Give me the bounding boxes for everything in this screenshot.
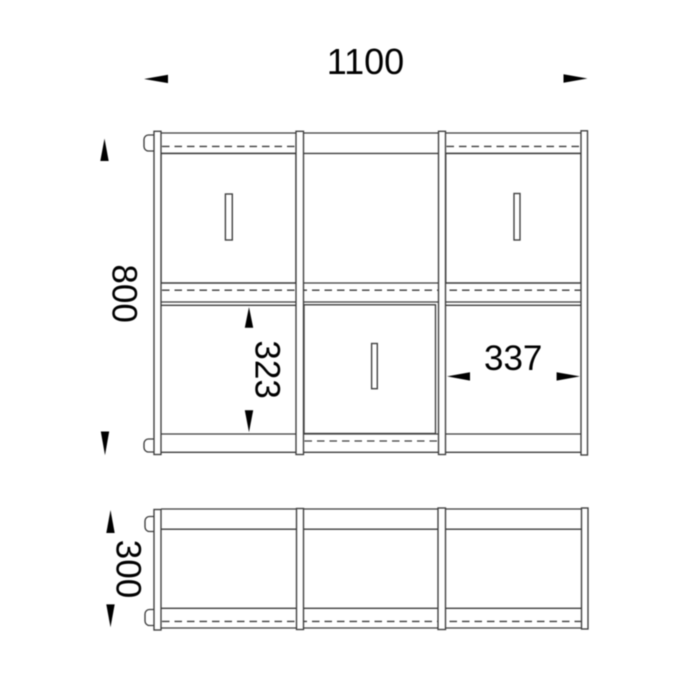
svg-text:300: 300	[108, 540, 147, 598]
svg-text:337: 337	[484, 339, 542, 378]
svg-text:323: 323	[248, 340, 287, 398]
svg-text:1100: 1100	[327, 41, 404, 82]
svg-text:800: 800	[105, 264, 144, 322]
